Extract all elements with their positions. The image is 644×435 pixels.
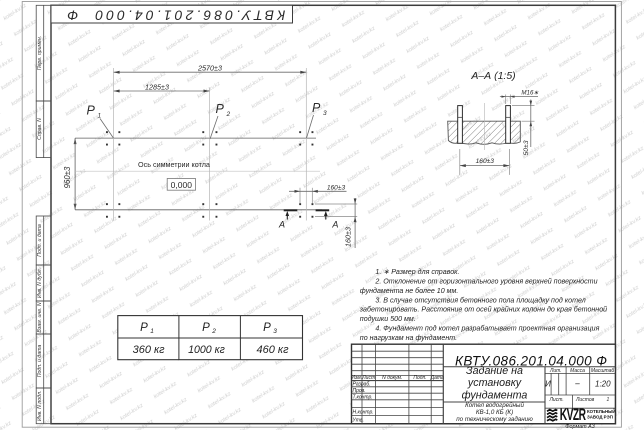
svg-text:160±3: 160±3	[344, 227, 353, 247]
svg-text:1:20: 1:20	[595, 379, 611, 388]
svg-text:фундамента не более 10 мм.: фундамента не более 10 мм.	[360, 287, 459, 295]
svg-text:И: И	[545, 379, 551, 388]
svg-text:Инв. N дубл.: Инв. N дубл.	[37, 268, 43, 298]
svg-text:А: А	[331, 220, 338, 230]
svg-text:Изм.: Изм.	[351, 375, 362, 381]
svg-text:1. ∗ Размер для справок.: 1. ∗ Размер для справок.	[375, 268, 459, 276]
svg-text:1000 кг: 1000 кг	[188, 344, 225, 356]
svg-text:2. Отклонение от горизонтально: 2. Отклонение от горизонтального уровня …	[374, 277, 597, 285]
svg-text:2570±3: 2570±3	[197, 63, 222, 72]
svg-text:Дата: Дата	[430, 375, 444, 381]
svg-text:Масштаб: Масштаб	[591, 368, 615, 374]
svg-text:Пров.: Пров.	[353, 388, 366, 394]
svg-text:P: P	[87, 103, 96, 117]
svg-text:Листов: Листов	[575, 397, 595, 403]
svg-text:Разраб.: Разраб.	[353, 382, 371, 388]
svg-text:P: P	[216, 102, 225, 116]
svg-text:фундамента: фундамента	[462, 389, 528, 401]
svg-text:М16∗: М16∗	[521, 89, 539, 96]
svg-text:1: 1	[607, 397, 610, 403]
svg-text:Взам. инв. N: Взам. инв. N	[37, 302, 43, 332]
svg-text:Задание на: Задание на	[466, 365, 523, 377]
svg-text:3: 3	[273, 328, 277, 335]
svg-text:А–А (1:5): А–А (1:5)	[470, 70, 515, 82]
svg-text:Формат А3: Формат А3	[565, 424, 595, 430]
svg-text:P: P	[140, 322, 148, 334]
svg-text:3. В случае отсутствия бетонно: 3. В случае отсутствия бетонного пола пл…	[375, 296, 585, 304]
svg-text:подушки 500 мм.: подушки 500 мм.	[360, 315, 416, 323]
svg-text:Масса: Масса	[570, 368, 585, 374]
svg-text:Инв. N подл.: Инв. N подл.	[37, 391, 43, 421]
svg-text:P: P	[202, 322, 210, 334]
svg-text:А: А	[278, 220, 285, 230]
svg-text:установку: установку	[467, 377, 522, 389]
svg-text:КВТУ.086.201.04.000 Ф: КВТУ.086.201.04.000 Ф	[64, 7, 285, 22]
svg-text:Подп. и дата: Подп. и дата	[37, 345, 43, 378]
svg-text:Справ. N: Справ. N	[37, 118, 43, 140]
svg-text:2: 2	[226, 111, 231, 118]
svg-text:–: –	[574, 379, 580, 388]
svg-text:Лит.: Лит.	[549, 368, 562, 374]
svg-text:Ось симметрии котла: Ось симметрии котла	[138, 160, 210, 169]
svg-text:КОТЕЛЬНЫЙ: КОТЕЛЬНЫЙ	[587, 409, 616, 414]
svg-text:по нагрузкам на фундамент.: по нагрузкам на фундамент.	[360, 334, 457, 342]
svg-text:4. Фундамент под котел разраба: 4. Фундамент под котел разрабатывает про…	[375, 325, 599, 333]
svg-text:по техническому заданию: по техническому заданию	[456, 416, 533, 423]
svg-text:P: P	[312, 101, 321, 115]
svg-text:Подп. и дата: Подп. и дата	[37, 224, 43, 257]
svg-text:2: 2	[211, 328, 216, 335]
svg-text:1285±3: 1285±3	[145, 83, 169, 92]
svg-text:Т.контр.: Т.контр.	[353, 395, 373, 401]
svg-text:50±3: 50±3	[523, 140, 530, 155]
svg-text:460 кг: 460 кг	[256, 344, 289, 356]
svg-text:Подп.: Подп.	[413, 375, 426, 381]
svg-text:Лист.: Лист.	[549, 397, 564, 403]
svg-text:1: 1	[150, 328, 154, 335]
svg-text:N докум.: N докум.	[382, 375, 402, 381]
svg-text:1: 1	[98, 112, 102, 119]
svg-text:160±3: 160±3	[476, 158, 495, 165]
svg-text:3: 3	[323, 110, 327, 117]
svg-text:КВ-1,0 КБ (К): КВ-1,0 КБ (К)	[476, 409, 513, 416]
svg-text:Утв.: Утв.	[353, 418, 364, 424]
svg-text:KVZR: KVZR	[560, 406, 586, 424]
svg-text:0,000: 0,000	[171, 180, 193, 190]
svg-text:забетонировать. Расстояние от: забетонировать. Расстояние от осей крайн…	[359, 306, 607, 314]
svg-text:160±3: 160±3	[327, 185, 346, 192]
svg-text:360 кг: 360 кг	[133, 344, 166, 356]
svg-text:P: P	[263, 322, 271, 334]
svg-text:Перв. примен.: Перв. примен.	[37, 36, 43, 70]
svg-text:Н.контр.: Н.контр.	[353, 409, 374, 415]
svg-text:ЗАВОД РЭП: ЗАВОД РЭП	[587, 415, 613, 420]
svg-text:Лист: Лист	[361, 375, 375, 381]
svg-text:960±3: 960±3	[63, 166, 72, 188]
